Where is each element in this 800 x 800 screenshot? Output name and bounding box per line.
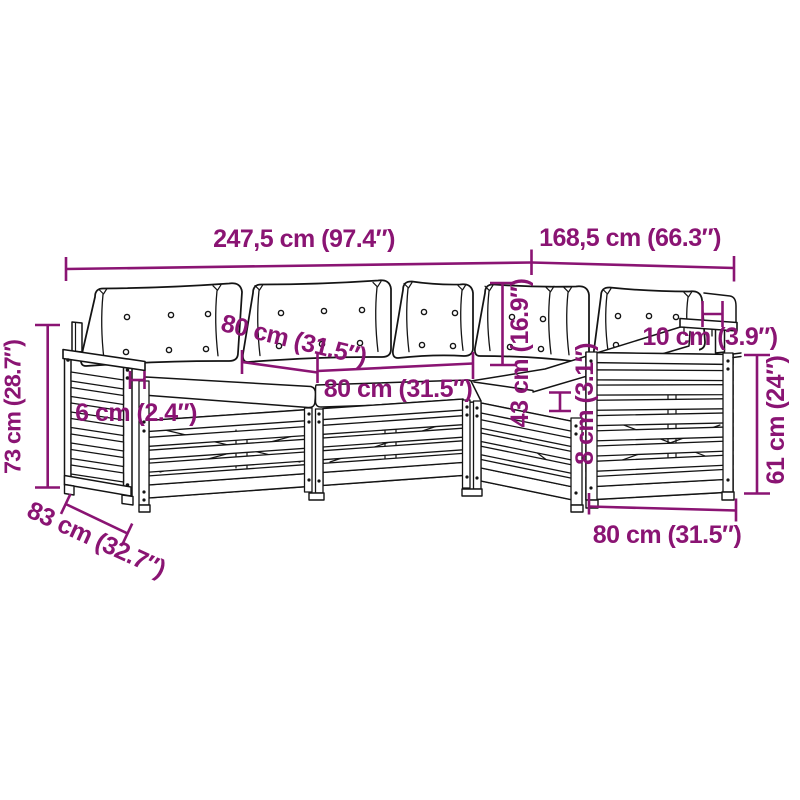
svg-text:168,5 cm (66.3″): 168,5 cm (66.3″) — [539, 224, 721, 252]
svg-text:61 cm (24″): 61 cm (24″) — [762, 355, 790, 484]
svg-text:80 cm (31.5″): 80 cm (31.5″) — [593, 521, 742, 549]
svg-text:43 cm (16.9″): 43 cm (16.9″) — [506, 279, 534, 428]
svg-text:10 cm (3.9″): 10 cm (3.9″) — [642, 323, 777, 351]
svg-text:80 cm (31.5″): 80 cm (31.5″) — [324, 375, 473, 403]
svg-text:73 cm (28.7″): 73 cm (28.7″) — [0, 340, 26, 474]
svg-text:8 cm (3.1″): 8 cm (3.1″) — [571, 343, 599, 465]
svg-text:6 cm (2.4″): 6 cm (2.4″) — [75, 399, 197, 427]
svg-text:247,5 cm (97.4″): 247,5 cm (97.4″) — [213, 225, 395, 253]
